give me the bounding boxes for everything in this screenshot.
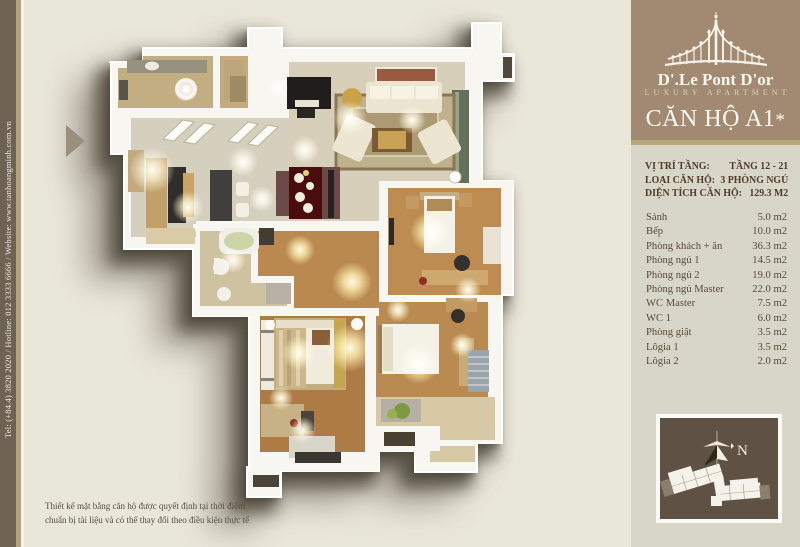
svg-text:N: N [737,443,748,459]
